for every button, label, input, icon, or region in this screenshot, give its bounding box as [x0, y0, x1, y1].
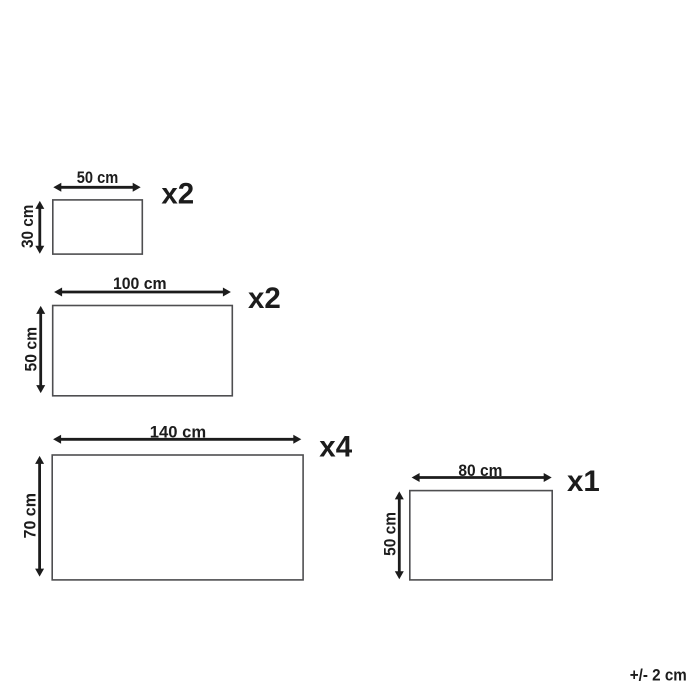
svg-text:x1: x1: [567, 465, 600, 498]
svg-text:x4: x4: [319, 431, 352, 464]
svg-text:x2: x2: [248, 282, 281, 315]
svg-text:x2: x2: [161, 177, 194, 210]
svg-text:50 cm: 50 cm: [21, 327, 40, 372]
svg-text:30 cm: 30 cm: [18, 205, 37, 248]
svg-text:50 cm: 50 cm: [381, 512, 400, 556]
svg-text:70 cm: 70 cm: [21, 493, 40, 538]
svg-text:140 cm: 140 cm: [150, 423, 206, 442]
svg-text:100 cm: 100 cm: [113, 274, 167, 293]
svg-text:50 cm: 50 cm: [77, 168, 119, 187]
svg-text:80 cm: 80 cm: [458, 461, 502, 480]
svg-text:+/- 2 cm: +/- 2 cm: [630, 665, 687, 684]
